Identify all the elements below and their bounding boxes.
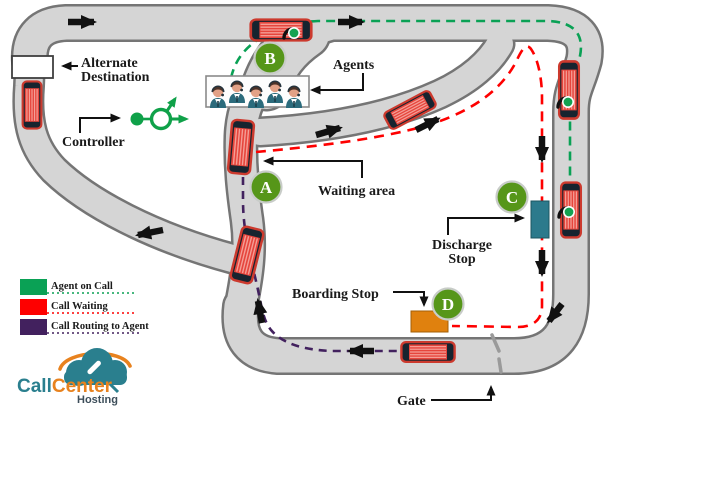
- label-discharge-stop-2: Stop: [448, 252, 475, 267]
- legend-label: Call Waiting: [51, 301, 108, 312]
- route-diagram: A B C D Alternate Destinatio: [0, 0, 720, 480]
- node-badge-b: B: [255, 43, 286, 74]
- legend-item-call-routing: Call Routing to Agent: [20, 319, 149, 335]
- label-alternate-destination: Alternate: [81, 56, 138, 71]
- bus-icon: [251, 20, 311, 41]
- direction-arrow-icon: [258, 301, 262, 323]
- node-letter-a: A: [260, 178, 273, 197]
- bus-icon: [23, 81, 42, 128]
- legend-item-call-waiting: Call Waiting: [20, 299, 137, 315]
- label-alternate-destination-2: Destination: [81, 70, 150, 85]
- bus-icon: [228, 120, 255, 175]
- label-discharge-stop: Discharge: [432, 238, 492, 253]
- node-badge-c: C: [497, 182, 528, 213]
- label-gate: Gate: [397, 394, 426, 409]
- bus-icon: [401, 342, 454, 362]
- logo-sub-text: Hosting: [77, 394, 118, 406]
- label-boarding-stop: Boarding Stop: [292, 287, 379, 302]
- node-badge-d: D: [433, 289, 464, 320]
- legend: Agent on Call Call Waiting Call Routing …: [20, 279, 149, 335]
- controller-branch-icon: [131, 99, 187, 129]
- node-letter-d: D: [442, 295, 454, 314]
- direction-arrow-icon: [416, 119, 438, 130]
- discharge-stop-marker: [531, 201, 549, 238]
- label-waiting-area: Waiting area: [318, 184, 395, 199]
- node-letter-c: C: [506, 188, 518, 207]
- bus-icon: [559, 61, 579, 118]
- legend-item-agent-on-call: Agent on Call: [20, 279, 137, 295]
- node-letter-b: B: [264, 49, 275, 68]
- brand-logo: CallCenter Hosting: [17, 348, 130, 406]
- route-diagram-page: A B C D Alternate Destinatio: [0, 0, 720, 480]
- agents-booth: [206, 76, 309, 108]
- node-badge-a: A: [251, 172, 282, 203]
- legend-label: Call Routing to Agent: [51, 321, 149, 332]
- alternate-destination-stop: [12, 56, 53, 78]
- label-agents: Agents: [333, 58, 375, 73]
- label-controller: Controller: [62, 135, 125, 150]
- legend-label: Agent on Call: [51, 281, 113, 292]
